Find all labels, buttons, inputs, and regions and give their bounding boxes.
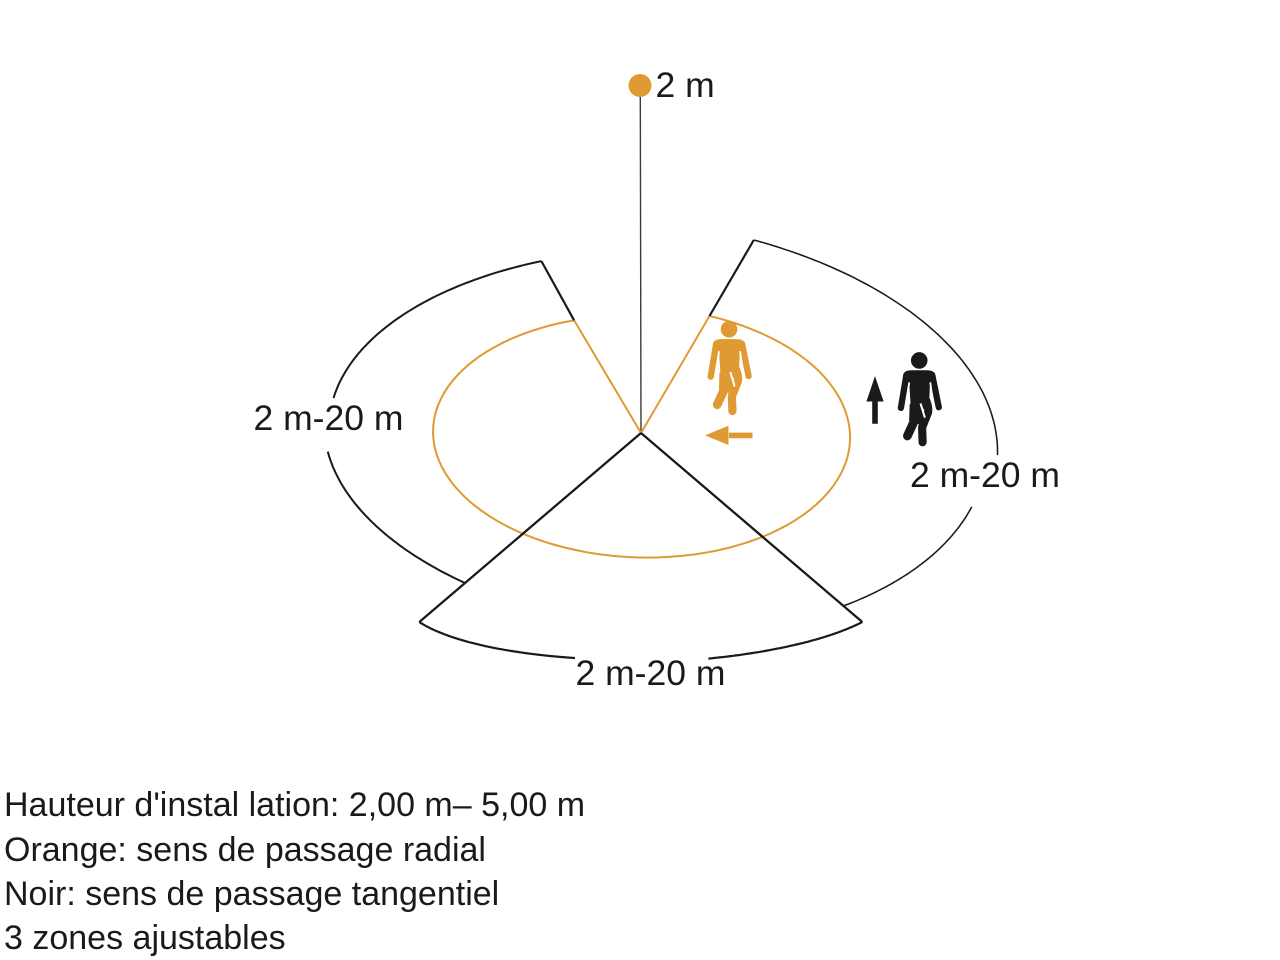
svg-text:2 m-20 m: 2 m-20 m bbox=[576, 653, 726, 693]
svg-text:2 m-20 m: 2 m-20 m bbox=[254, 398, 404, 438]
svg-text:Orange: sens de passage radial: Orange: sens de passage radial bbox=[4, 831, 486, 869]
svg-text:Hauteur d'instal lation: 2,00: Hauteur d'instal lation: 2,00 m– 5,00 m bbox=[4, 786, 585, 824]
svg-text:3 zones ajustables: 3 zones ajustables bbox=[4, 919, 286, 957]
svg-text:2 m-20 m: 2 m-20 m bbox=[910, 455, 1060, 495]
svg-text:Noir: sens de passage tangenti: Noir: sens de passage tangentiel bbox=[4, 875, 499, 913]
svg-text:2 m: 2 m bbox=[656, 65, 715, 105]
